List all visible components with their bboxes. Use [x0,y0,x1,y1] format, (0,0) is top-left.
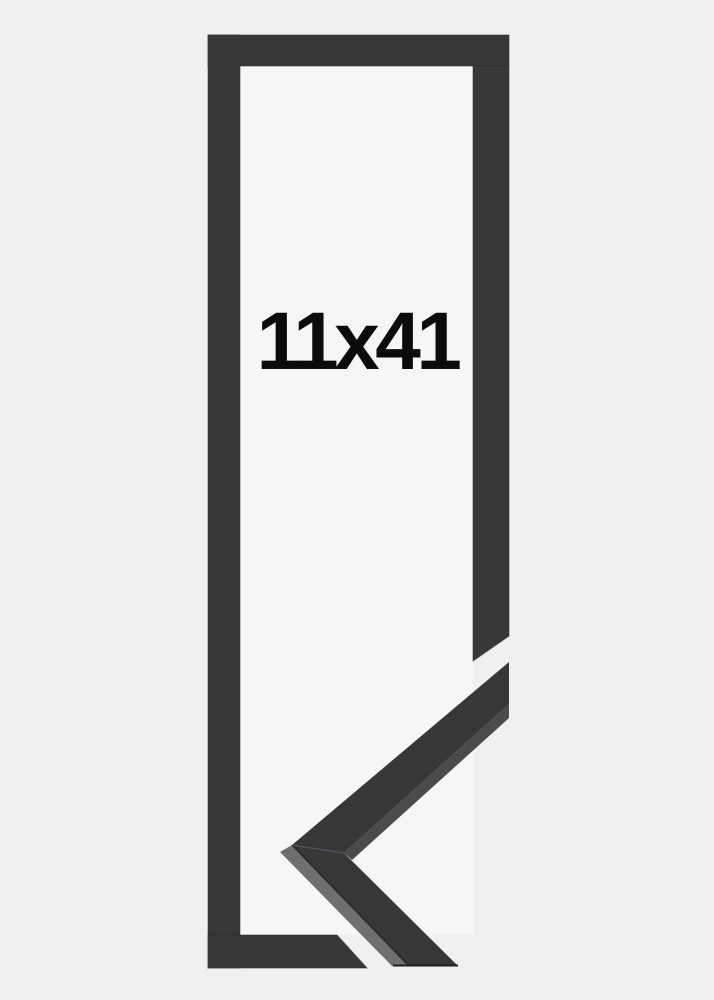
frame-left-bar [208,35,240,968]
product-image: 11x41 [0,0,714,1000]
size-label: 11x41 [0,301,714,383]
frame-illustration [0,0,714,1000]
frame-top-bar [208,35,509,66]
frame-bottom-bar [208,935,367,968]
